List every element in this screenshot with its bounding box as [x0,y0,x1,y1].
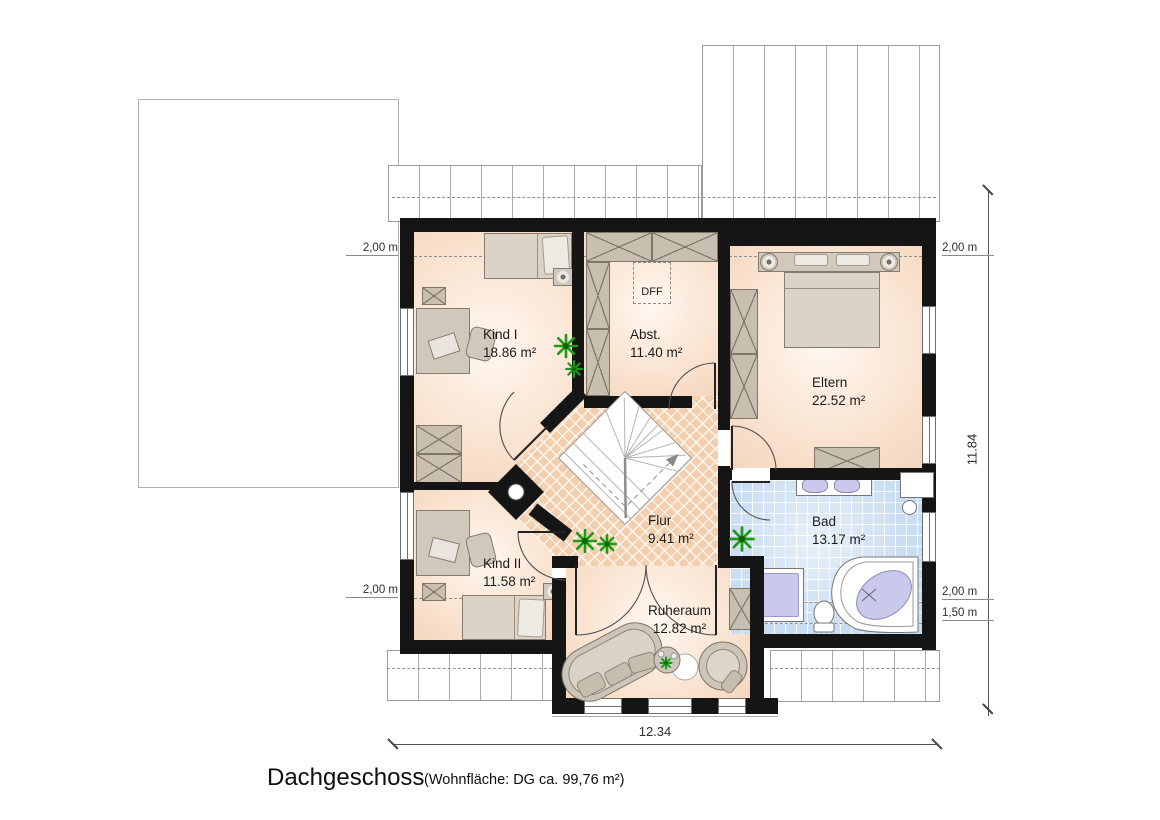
plant-icon [566,361,582,377]
dim-right-mid: 2,00 m [942,586,994,600]
room-area: 12.82 m² [648,620,711,638]
room-name: Kind I [483,326,536,344]
plan-title: Dachgeschoss [267,764,424,792]
label-eltern: Eltern 22.52 m² [812,374,865,410]
dim-left-lower: 2,00 m [346,584,398,598]
plan-subtitle: (Wohnfläche: DG ca. 99,76 m²) [424,772,624,788]
armchair [699,642,747,694]
plant-icon [574,530,596,552]
label-ruheraum: Ruheraum 12.82 m² [648,602,711,638]
label-flur: Flur 9.41 m² [648,512,694,548]
door-leaf-kind1 [514,426,548,460]
plant-icon [555,335,577,357]
toilet [814,601,834,632]
dimension-line-horizontal [393,744,938,745]
door-arc-abst [669,363,715,409]
room-area: 9.41 m² [648,530,694,548]
label-kind2: Kind II 11.58 m² [483,555,535,591]
plant-icon [598,535,616,553]
bathtub [832,557,921,633]
label-abst: Abst. 11.40 m² [630,326,682,362]
dim-left-upper: 2,00 m [346,242,398,256]
label-bad: Bad 13.17 m² [812,513,865,549]
dim-right-lower: 1,50 m [942,607,994,621]
room-name: Kind II [483,555,535,573]
staircase [559,392,692,525]
door-arc-kind1 [500,392,514,460]
dim-total-height: 11.84 [965,428,980,472]
plant-icon [730,527,753,550]
wall-diagonal-kind1 [545,391,582,428]
room-name: Flur [648,512,694,530]
plant-icon [661,658,672,669]
plan-details-layer [0,0,1160,820]
door-arc-bad [732,482,770,520]
label-kind1: Kind I 18.86 m² [483,326,536,362]
room-name: Ruheraum [648,602,711,620]
door-arc-eltern [732,426,776,470]
dim-total-width: 12.34 [625,724,685,739]
room-area: 13.17 m² [812,531,865,549]
room-area: 18.86 m² [483,344,536,362]
room-area: 22.52 m² [812,392,865,410]
floorplan-canvas: Kind I 18.86 m² Abst. 11.40 m² Eltern 22… [0,0,1160,820]
room-name: Bad [812,513,865,531]
dimension-line-vertical [988,190,989,716]
room-area: 11.58 m² [483,573,535,591]
room-name: Eltern [812,374,865,392]
room-area: 11.40 m² [630,344,682,362]
label-dff: DFF [633,286,671,298]
room-name: Abst. [630,326,682,344]
dim-right-upper: 2,00 m [942,242,994,256]
